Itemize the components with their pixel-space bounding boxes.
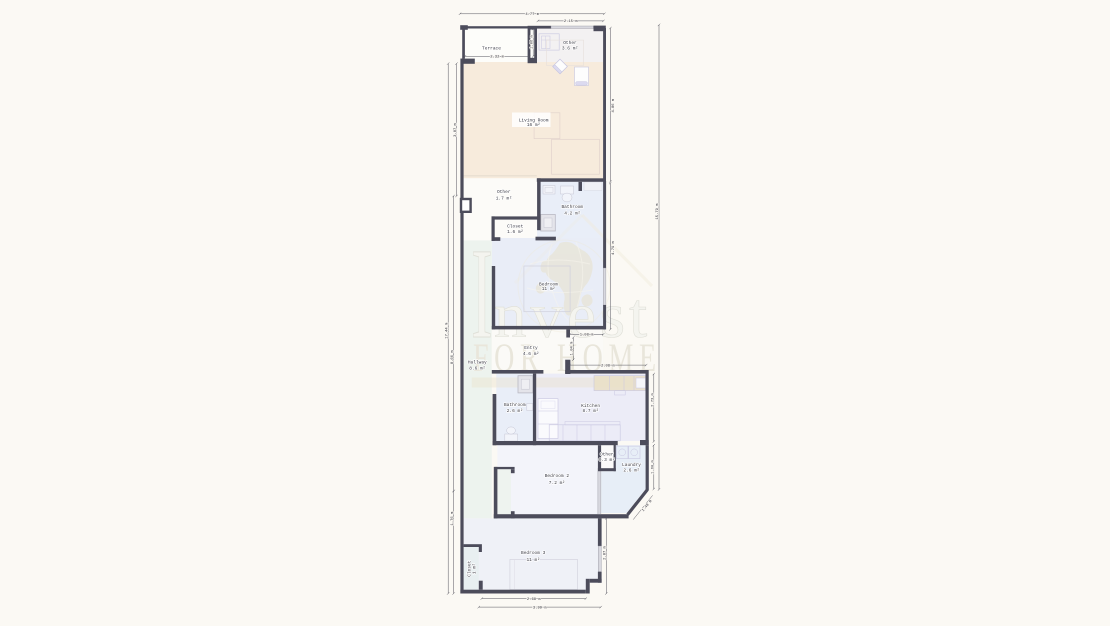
svg-text:Bathroom: Bathroom	[561, 204, 583, 210]
svg-text:Kitchen: Kitchen	[581, 403, 600, 409]
svg-text:0.3 m²: 0.3 m²	[599, 457, 616, 463]
svg-text:Bathroom: Bathroom	[504, 402, 526, 408]
svg-text:3.6 m²: 3.6 m²	[562, 46, 579, 52]
svg-text:3.87 m: 3.87 m	[454, 122, 458, 136]
svg-text:Laundry: Laundry	[622, 462, 641, 468]
svg-text:11 m²: 11 m²	[542, 286, 556, 292]
svg-text:1.60 m: 1.60 m	[651, 459, 655, 473]
svg-text:Entry: Entry	[524, 345, 538, 351]
svg-text:Bedroom 3: Bedroom 3	[521, 550, 546, 556]
svg-text:3.99 m: 3.99 m	[533, 606, 547, 610]
svg-text:11 m²: 11 m²	[526, 557, 540, 563]
svg-text:16 m²: 16 m²	[527, 122, 541, 128]
svg-text:Other: Other	[600, 452, 614, 458]
svg-text:1.7 m²: 1.7 m²	[496, 196, 513, 202]
svg-text:4.2 m²: 4.2 m²	[564, 211, 581, 217]
svg-text:4.77 m: 4.77 m	[525, 13, 539, 17]
svg-text:2.6 m²: 2.6 m²	[507, 408, 524, 414]
svg-text:2.32 m: 2.32 m	[490, 56, 504, 60]
svg-text:4.86 m: 4.86 m	[612, 98, 616, 112]
svg-text:1.76 m: 1.76 m	[451, 511, 455, 525]
svg-text:2.08 m: 2.08 m	[601, 364, 615, 368]
svg-text:Bedroom 2: Bedroom 2	[545, 473, 570, 479]
svg-text:Closet: Closet	[507, 223, 524, 229]
svg-text:4.6 m²: 4.6 m²	[523, 351, 540, 357]
svg-text:1.04 m: 1.04 m	[571, 341, 575, 355]
svg-text:4.79 m: 4.79 m	[612, 240, 616, 254]
svg-text:2.15 m: 2.15 m	[564, 20, 578, 24]
svg-text:2.68 m: 2.68 m	[527, 598, 541, 602]
svg-text:1.06 m: 1.06 m	[531, 34, 535, 48]
svg-text:Other: Other	[563, 40, 577, 46]
svg-text:8.7 m²: 8.7 m²	[582, 408, 599, 414]
svg-text:2.87 m: 2.87 m	[604, 545, 608, 559]
svg-text:17.44 m: 17.44 m	[446, 322, 450, 339]
svg-text:8.6 m²: 8.6 m²	[469, 366, 486, 372]
svg-text:Other: Other	[497, 189, 511, 195]
svg-text:1.6 m²: 1.6 m²	[507, 229, 524, 235]
svg-text:15.79 m: 15.79 m	[656, 203, 660, 220]
svg-text:2.6 m²: 2.6 m²	[623, 468, 640, 474]
svg-text:8.66 m: 8.66 m	[451, 350, 455, 364]
svg-text:Terrace: Terrace	[482, 45, 501, 51]
svg-text:1 m²: 1 m²	[472, 563, 478, 574]
svg-text:2.73 m: 2.73 m	[651, 392, 655, 406]
svg-text:1.08 m: 1.08 m	[580, 334, 594, 338]
svg-text:Hallway: Hallway	[468, 360, 487, 366]
svg-text:7.2 m²: 7.2 m²	[549, 480, 566, 486]
